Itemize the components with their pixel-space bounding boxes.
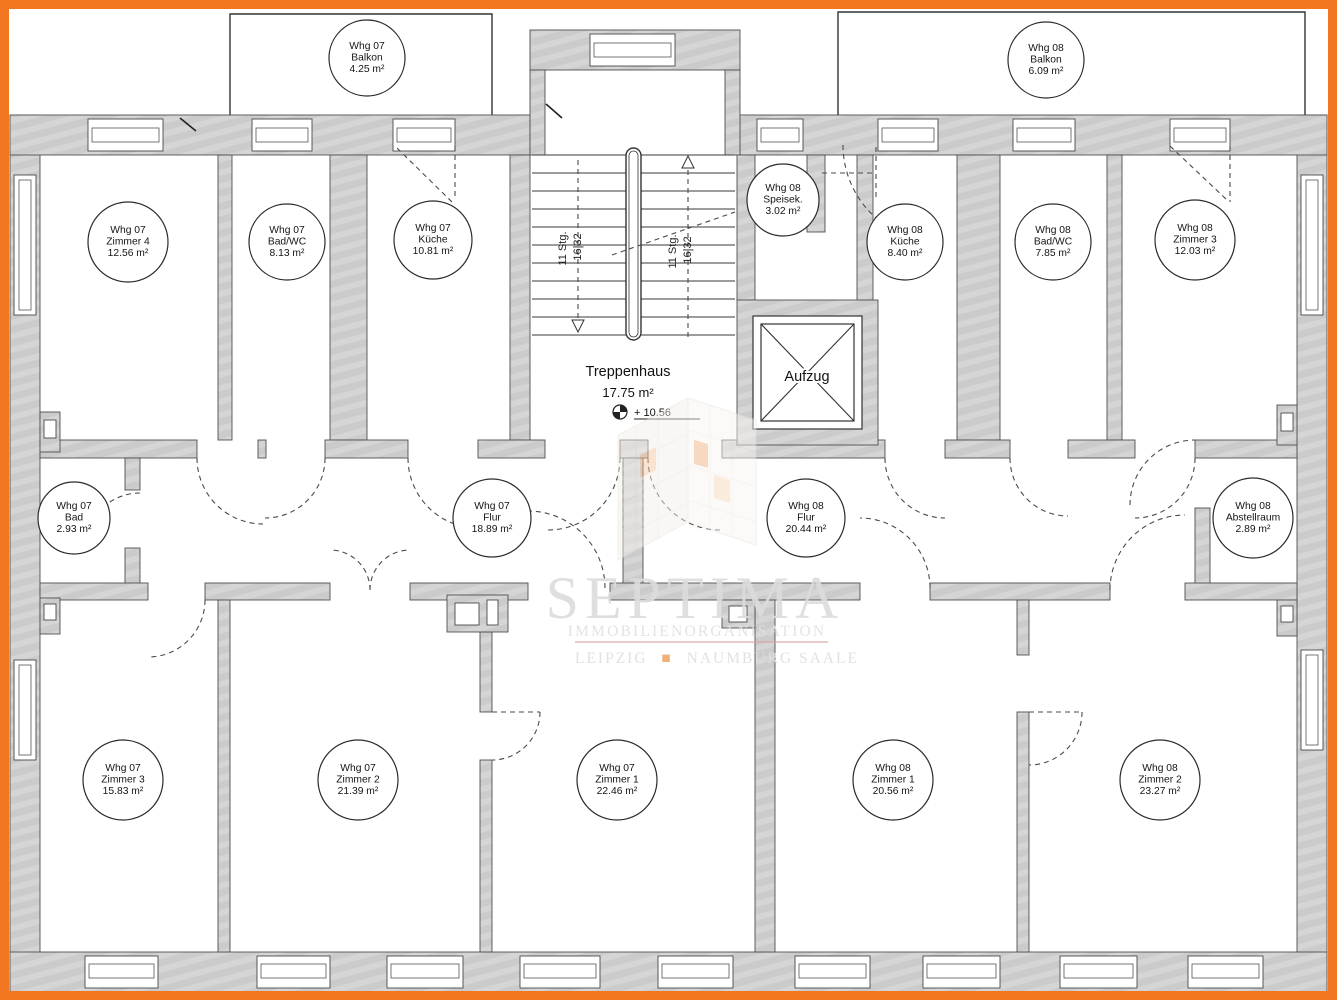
- window: [658, 956, 733, 988]
- window: [257, 956, 330, 988]
- stair-flight-label-left: 11 Stg. 16|32: [557, 228, 584, 265]
- window: [1060, 956, 1137, 988]
- watermark-cities: LEIPZIG ■ NAUMBURG SAALE: [575, 650, 859, 667]
- room-label-whg07-zimmer3: Whg 07Zimmer 315.83 m²: [83, 740, 163, 820]
- room-label-whg07-balkon: Whg 07Balkon4.25 m²: [329, 20, 405, 96]
- room-label-whg08-abstellraum: Whg 08Abstellraum2.89 m²: [1213, 478, 1293, 558]
- chimney-shaft: [40, 412, 60, 452]
- svg-text:Whg 07Balkon4.25 m²: Whg 07Balkon4.25 m²: [349, 41, 385, 75]
- room-label-whg07-zimmer1: Whg 07Zimmer 122.46 m²: [577, 740, 657, 820]
- watermark-brand: SEPTIMA: [546, 565, 845, 631]
- svg-text:Whg 07Zimmer 122.46 m²: Whg 07Zimmer 122.46 m²: [595, 763, 639, 797]
- svg-text:11 Stg. 16|32: 11 Stg. 16|32: [557, 228, 584, 265]
- room-label-whg08-balkon: Whg 08Balkon6.09 m²: [1008, 22, 1084, 98]
- room-label-whg07-bad: Whg 07Bad2.93 m²: [38, 482, 110, 554]
- window: [1188, 956, 1263, 988]
- svg-text:Whg 07Zimmer 315.83 m²: Whg 07Zimmer 315.83 m²: [101, 763, 145, 797]
- svg-text:Aufzug: Aufzug: [784, 369, 829, 385]
- window: [520, 956, 600, 988]
- bad-whg07-walls: [125, 458, 140, 585]
- window: [387, 956, 463, 988]
- svg-text:Whg 07Zimmer 412.56 m²: Whg 07Zimmer 412.56 m²: [106, 225, 150, 259]
- chimney-shaft: [447, 595, 508, 632]
- svg-text:Treppenhaus: Treppenhaus: [586, 364, 671, 380]
- window: [85, 956, 158, 988]
- window: [757, 119, 803, 151]
- room-label-whg08-zimmer2: Whg 08Zimmer 223.27 m²: [1120, 740, 1200, 820]
- window: [252, 119, 312, 151]
- window: [14, 660, 36, 760]
- room-label-whg08-zimmer3: Whg 08Zimmer 312.03 m²: [1155, 200, 1235, 280]
- floor-plan-drawing: 11 Stg. 16|32 11 Stg. 16|32 Treppenhaus …: [9, 9, 1328, 991]
- window: [923, 956, 1000, 988]
- window: [1013, 119, 1075, 151]
- floor-plan-sheet: 11 Stg. 16|32 11 Stg. 16|32 Treppenhaus …: [0, 0, 1337, 1000]
- interior-walls-upper: [218, 155, 1122, 440]
- chimney-shaft: [40, 598, 60, 634]
- stairwell-title: Treppenhaus 17.75 m²: [586, 364, 671, 400]
- svg-text:Whg 08Balkon6.09 m²: Whg 08Balkon6.09 m²: [1028, 43, 1064, 77]
- svg-text:Whg 08Bad/WC7.85 m²: Whg 08Bad/WC7.85 m²: [1034, 225, 1073, 259]
- window: [1301, 175, 1323, 315]
- room-label-whg07-zimmer2: Whg 07Zimmer 221.39 m²: [318, 740, 398, 820]
- chimney-shaft: [1277, 405, 1297, 445]
- room-label-whg08-kueche: Whg 08Küche8.40 m²: [867, 204, 943, 280]
- room-label-whg08-speisekammer: Whg 08Speisek.3.02 m²: [747, 164, 819, 236]
- room-label-whg08-badwc: Whg 08Bad/WC7.85 m²: [1015, 204, 1091, 280]
- abstellraum-walls: [1195, 508, 1210, 590]
- window: [1301, 650, 1323, 750]
- room-label-whg08-flur: Whg 08Flur20.44 m²: [767, 479, 845, 557]
- svg-text:Whg 08Zimmer 312.03 m²: Whg 08Zimmer 312.03 m²: [1173, 223, 1217, 257]
- svg-text:Whg 08Zimmer 223.27 m²: Whg 08Zimmer 223.27 m²: [1138, 763, 1182, 797]
- room-label-whg07-flur: Whg 07Flur18.89 m²: [453, 479, 531, 557]
- balcony-door-opening: [1170, 119, 1230, 151]
- window: [88, 119, 163, 151]
- chimney-shaft: [1277, 600, 1297, 636]
- svg-text:Whg 08Küche8.40 m²: Whg 08Küche8.40 m²: [887, 225, 923, 259]
- watermark-subtitle: IMMOBILIENORGANISATION: [568, 623, 827, 640]
- svg-text:Whg 08Speisek.3.02 m²: Whg 08Speisek.3.02 m²: [763, 183, 803, 217]
- window: [795, 956, 870, 988]
- window: [590, 34, 675, 66]
- balcony-door-opening: [393, 119, 455, 151]
- room-label-whg07-badwc: Whg 07Bad/WC8.13 m²: [249, 204, 325, 280]
- svg-text:Whg 07Bad/WC8.13 m²: Whg 07Bad/WC8.13 m²: [268, 225, 307, 259]
- svg-text:17.75 m²: 17.75 m²: [602, 385, 654, 400]
- balcony-door-opening: [878, 119, 938, 151]
- svg-text:Whg 07Zimmer 221.39 m²: Whg 07Zimmer 221.39 m²: [336, 763, 380, 797]
- room-label-whg07-zimmer4: Whg 07Zimmer 412.56 m²: [88, 202, 168, 282]
- room-label-whg08-zimmer1: Whg 08Zimmer 120.56 m²: [853, 740, 933, 820]
- watermark-logo: [618, 398, 756, 560]
- room-label-whg07-kueche: Whg 07Küche10.81 m²: [394, 201, 472, 279]
- window: [14, 175, 36, 315]
- elevator: Aufzug: [737, 300, 878, 445]
- svg-text:Whg 08Zimmer 120.56 m²: Whg 08Zimmer 120.56 m²: [871, 763, 915, 797]
